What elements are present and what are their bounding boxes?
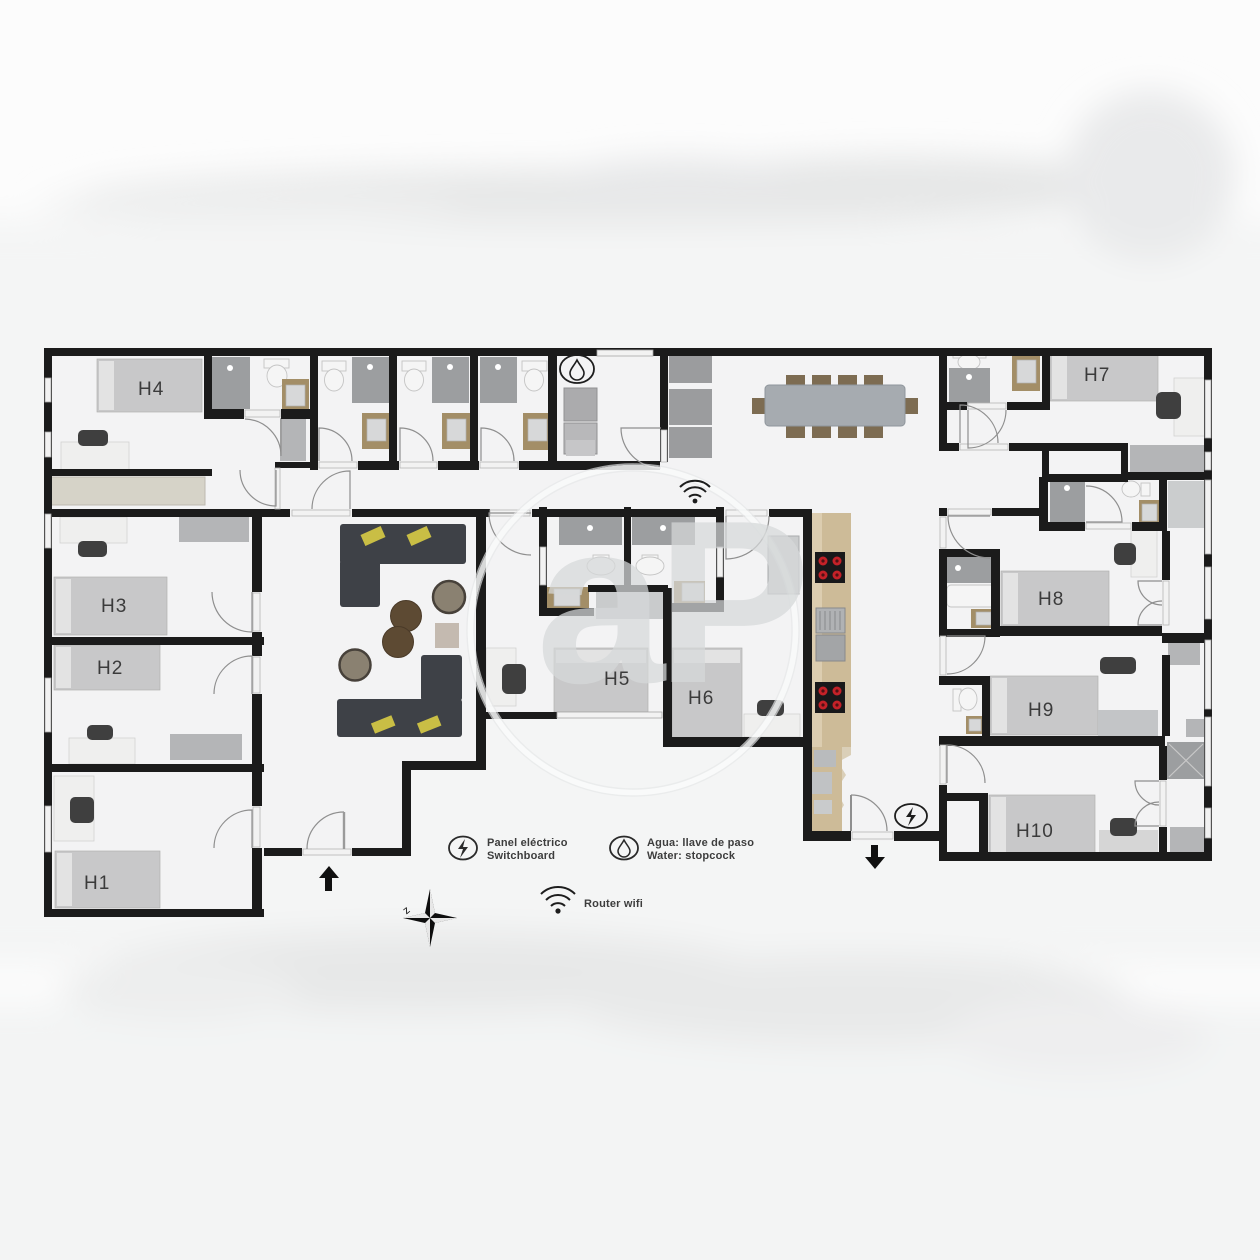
svg-text:Water: stopcock: Water: stopcock [647, 850, 736, 862]
svg-text:H7: H7 [1084, 365, 1110, 386]
svg-text:H5: H5 [604, 669, 630, 690]
svg-text:H1: H1 [84, 873, 110, 894]
svg-text:Switchboard: Switchboard [487, 850, 555, 862]
svg-text:H8: H8 [1038, 589, 1064, 610]
svg-text:Panel eléctrico: Panel eléctrico [487, 837, 568, 849]
svg-text:H10: H10 [1016, 821, 1054, 842]
svg-text:H9: H9 [1028, 700, 1054, 721]
svg-text:H3: H3 [101, 596, 127, 617]
svg-text:Router wifi: Router wifi [584, 898, 643, 910]
svg-text:aP: aP [536, 473, 803, 732]
svg-text:H4: H4 [138, 379, 164, 400]
svg-text:H6: H6 [688, 688, 714, 709]
svg-text:H2: H2 [97, 658, 123, 679]
svg-text:Agua: llave de paso: Agua: llave de paso [647, 837, 754, 849]
